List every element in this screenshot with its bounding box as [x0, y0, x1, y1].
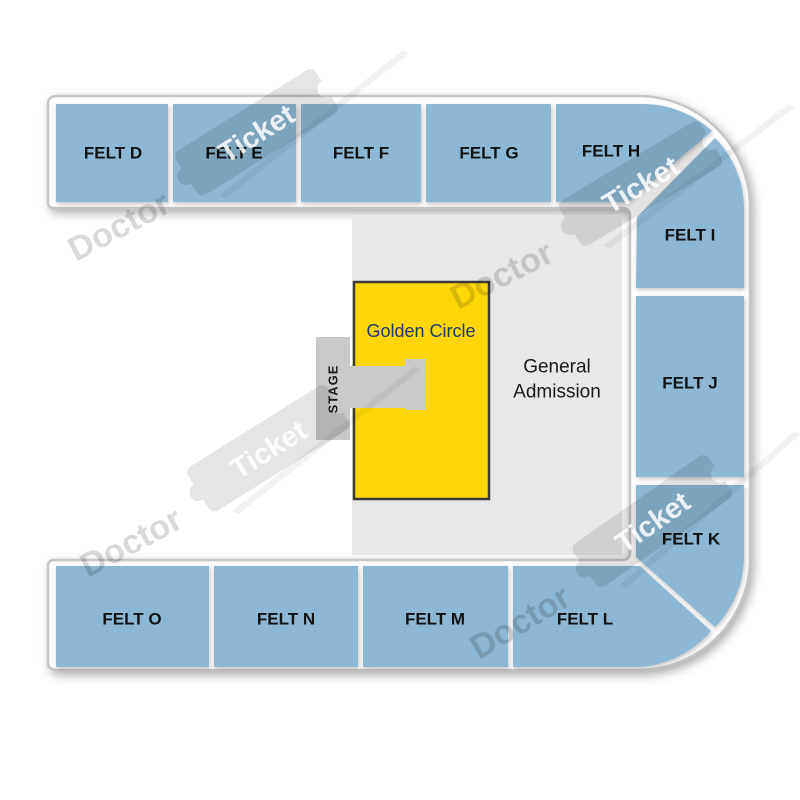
venue-seat-map: FELT D FELT E FELT F FELT G FELT H FELT … [0, 0, 800, 800]
golden-circle-label: Golden Circle [366, 321, 475, 341]
section-felt-d-label: FELT D [84, 144, 142, 163]
section-felt-i-label: FELT I [665, 226, 716, 245]
general-admission-label-line1: General [523, 357, 591, 378]
section-felt-o-label: FELT O [102, 610, 161, 629]
section-felt-f-label: FELT F [333, 144, 389, 163]
section-felt-h-label: FELT H [582, 142, 640, 161]
stage-runway-platform [405, 359, 426, 410]
section-felt-j-label: FELT J [662, 374, 717, 393]
general-admission-label-line2: Admission [513, 382, 601, 403]
section-felt-g-label: FELT G [459, 144, 518, 163]
section-felt-m-label: FELT M [405, 610, 465, 629]
section-felt-n-label: FELT N [257, 610, 315, 629]
